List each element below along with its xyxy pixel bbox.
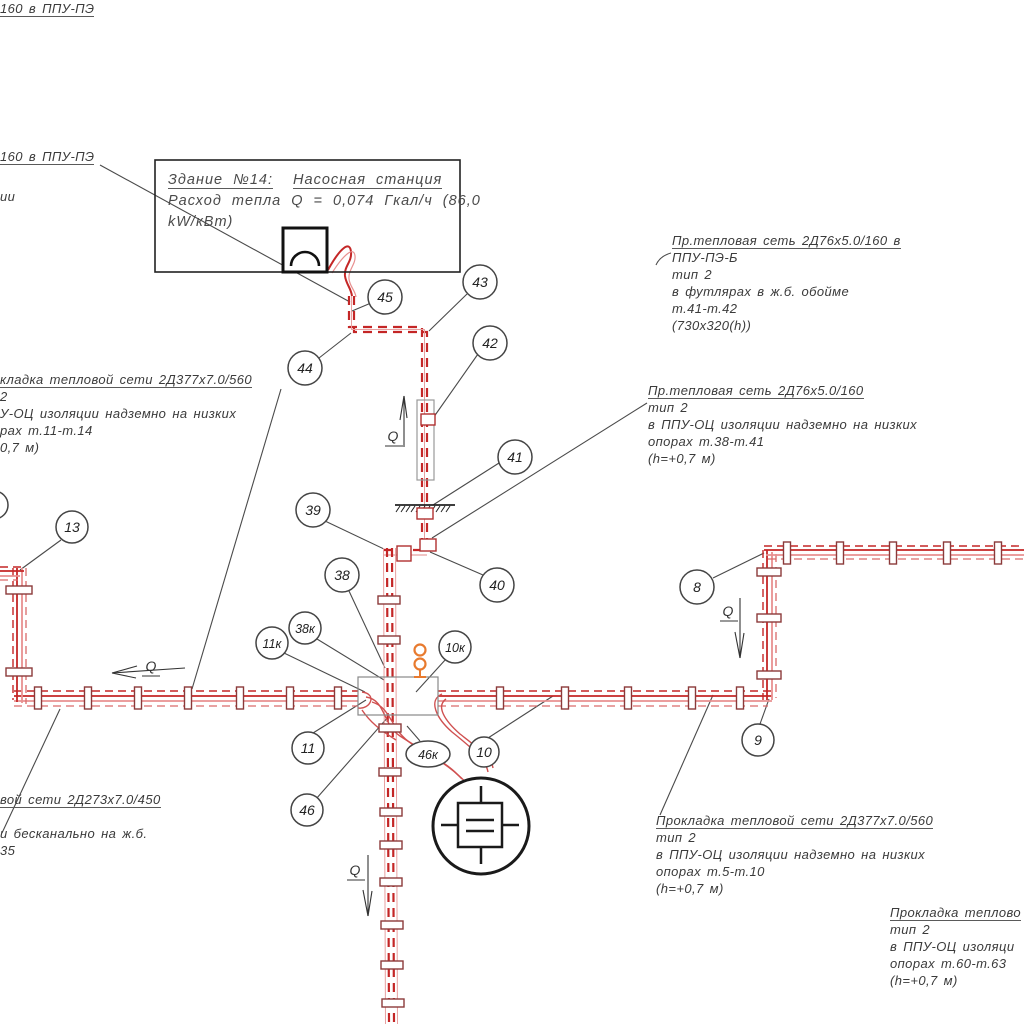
flow-q-label-1: Q — [388, 428, 399, 444]
node-42: 42 — [473, 326, 507, 360]
pipe-casing-rect — [417, 400, 434, 480]
annotation-bottomright1: Прокладка тепловой сети 2Д377х7.0/560 ти… — [656, 812, 933, 897]
pipe-lower-trunk — [383, 548, 427, 1024]
node-41: 41 — [498, 440, 532, 474]
svg-text:40: 40 — [489, 577, 505, 593]
node-38: 38 — [325, 558, 359, 592]
svg-text:42: 42 — [482, 335, 498, 351]
svg-text:46к: 46к — [418, 748, 439, 762]
svg-text:43: 43 — [472, 274, 488, 290]
node-10: 10 — [469, 737, 499, 767]
leader-bottomright-annotation — [660, 695, 713, 815]
leader-node-13 — [20, 540, 61, 570]
svg-text:44: 44 — [297, 360, 313, 376]
valve-symbol-icon — [414, 645, 426, 679]
node-markers: 45 43 44 42 41 39 40 38 38к 11к 10к 13 8… — [0, 265, 774, 826]
building-heat-load-units: kW/кВт) — [168, 212, 481, 233]
pump-symbol-icon — [283, 228, 327, 272]
leader-node-9 — [760, 699, 769, 724]
svg-text:45: 45 — [377, 289, 393, 305]
svg-text:38: 38 — [334, 567, 350, 583]
node-13: 13 — [56, 511, 88, 543]
node-partial-left-edge — [0, 491, 8, 519]
svg-text:8: 8 — [693, 579, 701, 595]
node-39: 39 — [296, 493, 330, 527]
leader-node-11k — [284, 653, 365, 692]
node-44: 44 — [288, 351, 322, 385]
leader-right2-annotation — [432, 403, 647, 538]
svg-text:9: 9 — [754, 732, 762, 748]
node-11: 11 — [292, 732, 324, 764]
svg-text:11: 11 — [301, 740, 316, 756]
trunk-left-stub — [0, 567, 24, 580]
svg-text:38к: 38к — [295, 622, 316, 636]
svg-text:13: 13 — [64, 519, 80, 535]
svg-text:10: 10 — [476, 744, 492, 760]
node-46k: 46к — [406, 741, 450, 767]
building-title: Здание №14: — [168, 172, 273, 189]
trunk-right-horizontal — [438, 691, 772, 706]
annotation-bottomleft: вой сети 2Д273х7.0/450 и бесканально на … — [0, 791, 161, 859]
annotation-left: кладка тепловой сети 2Д377х7.0/560 2 У-О… — [0, 371, 252, 456]
annotation-bottomright2: Прокладка теплово тип 2 в ППУ-ОЦ изоляци… — [890, 904, 1021, 989]
flow-arrows — [112, 396, 744, 916]
leader-node-44 — [319, 333, 351, 358]
pipe-supports — [6, 542, 1002, 1007]
svg-text:10к: 10к — [445, 641, 466, 655]
node-45: 45 — [368, 280, 402, 314]
consumer-building-icon — [433, 778, 529, 874]
flow-q-label-4: Q — [350, 862, 361, 878]
node-43: 43 — [463, 265, 497, 299]
node-38k: 38к — [289, 612, 321, 644]
annotation-right2: Пр.тепловая сеть 2Д76х5.0/160 тип 2 в ПП… — [648, 382, 917, 467]
flow-q-label-3: Q — [723, 603, 734, 619]
leader-node-42 — [431, 354, 478, 421]
building-subtitle: Насосная станция — [293, 172, 442, 189]
building-heat-load: Расход тепла Q = 0,074 Гкал/ч (86,0 — [168, 191, 481, 212]
svg-text:39: 39 — [305, 502, 321, 518]
node-46: 46 — [291, 794, 323, 826]
annotation-topleft: 160 в ППУ-ПЭ — [0, 148, 94, 165]
annotation-topleft-2: ии — [0, 188, 15, 205]
svg-text:46: 46 — [299, 802, 315, 818]
leader-node-40 — [430, 552, 483, 575]
annotation-right1: Пр.тепловая сеть 2Д76х5.0/160 в ППУ-ПЭ-Б… — [672, 232, 901, 334]
node-40: 40 — [480, 568, 514, 602]
svg-text:41: 41 — [507, 449, 523, 465]
building-label-text: Здание №14: Насосная станция Расход тепл… — [168, 170, 481, 233]
leader-right1-annotation — [656, 253, 671, 265]
node-9: 9 — [742, 724, 774, 756]
leader-node-46 — [316, 716, 389, 799]
svg-text:11к: 11к — [263, 637, 283, 651]
node-10k: 10к — [439, 631, 471, 663]
leader-node-43 — [429, 294, 467, 331]
flow-q-label-2: Q — [146, 658, 157, 674]
node-11k: 11к — [256, 627, 288, 659]
annotation-topleft-line1: 160 в ППУ-ПЭ — [0, 0, 94, 17]
node-8: 8 — [680, 570, 714, 604]
leader-node-41 — [433, 463, 499, 505]
heat-network-drawing: Q Q Q Q 45 43 44 42 41 39 40 38 38к 11к … — [0, 0, 1024, 1024]
leader-node-39 — [325, 521, 384, 549]
leader-node-46k — [407, 726, 420, 741]
